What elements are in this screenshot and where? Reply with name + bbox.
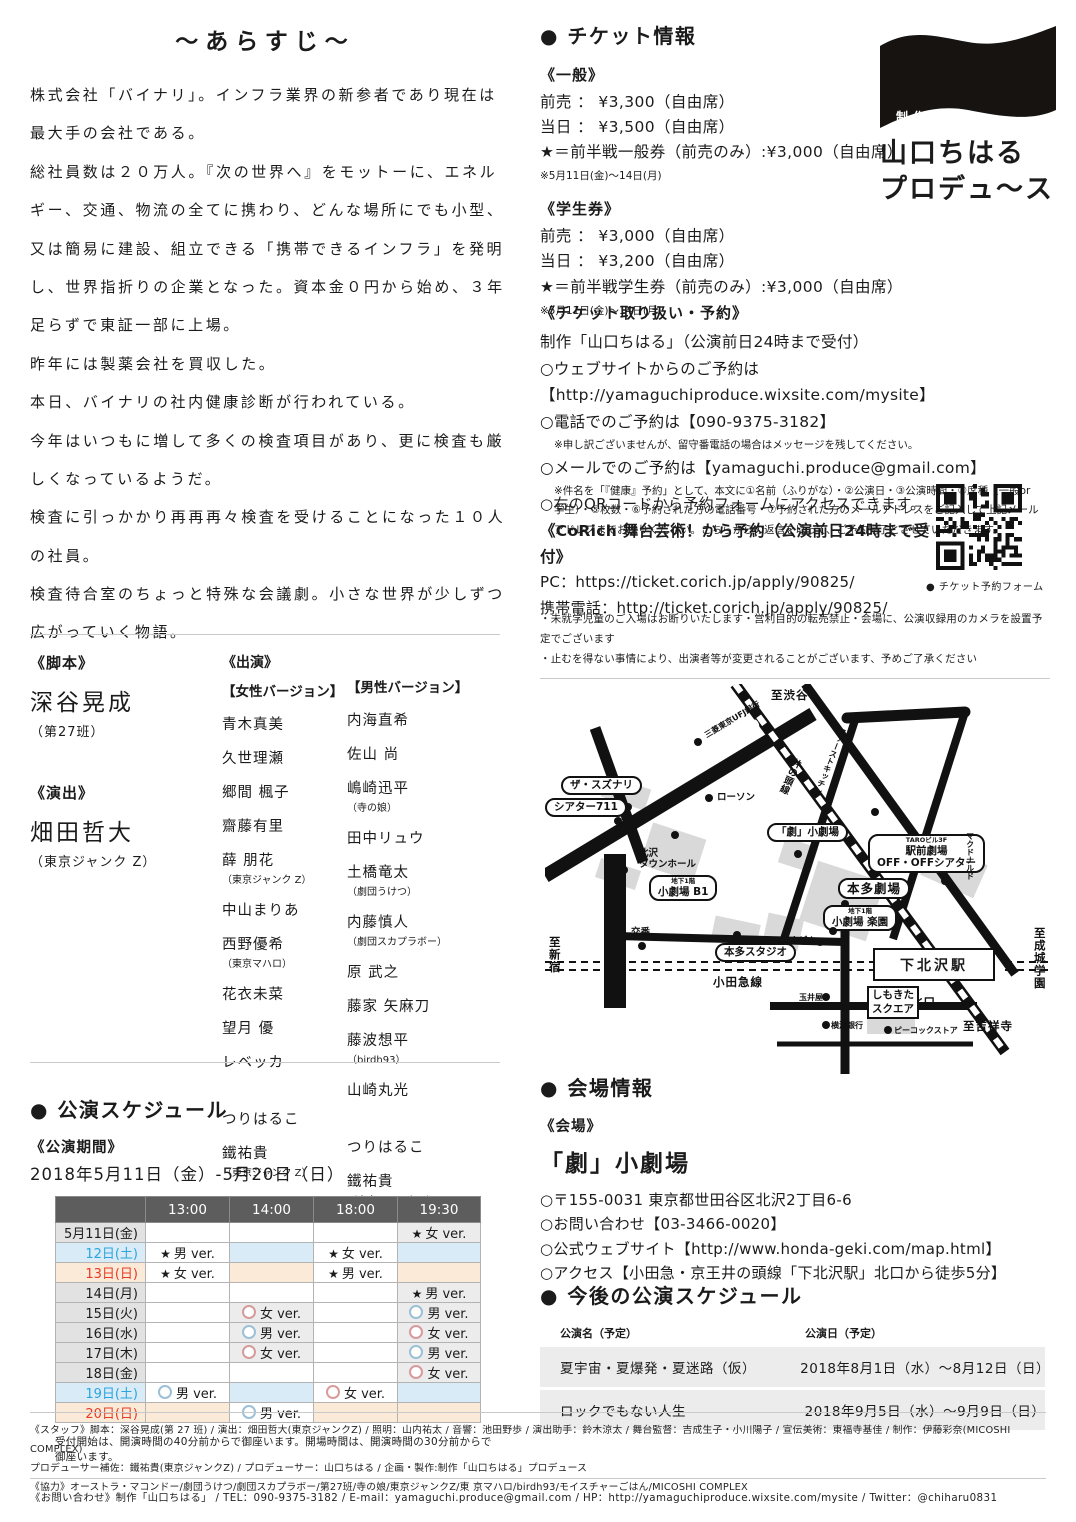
schedule-cell: ★男 ver. [146, 1243, 230, 1263]
schedule-cell: 女 ver. [398, 1363, 481, 1383]
schedule-cell [398, 1263, 481, 1283]
schedule-cell [146, 1363, 230, 1383]
map-label: 地下1階小劇場 B1 [649, 875, 717, 901]
schedule-cell [146, 1283, 230, 1303]
cast-member-name: 青木真美 [222, 713, 347, 734]
schedule-row: 13日(日)★女 ver.★男 ver. [56, 1263, 481, 1283]
cast-member-note: （劇団うけつ） [347, 883, 505, 898]
star-icon: ★ [412, 1287, 423, 1301]
direction-label: 《演出》 [30, 782, 220, 803]
cast-label-spacer [347, 652, 505, 668]
schedule-cell [314, 1363, 398, 1383]
cast-member: 望月 優 [222, 1017, 347, 1038]
cast-member-name: 薛 朋花 [222, 849, 347, 870]
cast-member: 田中リュウ [347, 827, 505, 848]
map-label: 至成城学園 [1032, 927, 1046, 990]
schedule-row: 12日(土)★男 ver.★女 ver. [56, 1243, 481, 1263]
qr-caption: ● チケット予約フォーム [926, 578, 1056, 593]
venue-line: ○公式ウェブサイト【http://www.honda-geki.com/map.… [540, 1237, 1045, 1261]
notice-line: ・止むを得ない事情により、出演者等が変更されることがございます、予めご了承くださ… [540, 650, 1045, 670]
map-label: 玉井屋 [799, 993, 823, 1003]
map-label-line: OFF・OFFシアター [877, 857, 976, 870]
cast-member: 原 武之 [347, 961, 505, 982]
cast-member-name: 西野優希 [222, 933, 347, 954]
map-dot [794, 850, 802, 858]
schedule-date: 18日(金) [56, 1363, 146, 1383]
notice-line: ・未就学児童のご入場はお断りいたします・営利目的の転売禁止・会場に、公演収録用の… [540, 610, 1045, 650]
cast-male-label: 【男性バージョン】 [347, 676, 505, 696]
schedule-cell [146, 1303, 230, 1323]
logo-name-line2: プロデュ～ス [880, 172, 1065, 208]
map-dot [694, 738, 702, 746]
synopsis-paragraph: 昨年には製薬会社を買収した。 [30, 345, 506, 383]
reservation-line: 【http://yamaguchiproduce.wixsite.com/mys… [540, 382, 1045, 409]
period-value: 2018年5月11日（金）-5月20日（日） [30, 1161, 500, 1185]
schedule-row: 15日(火)女 ver.男 ver. [56, 1303, 481, 1323]
cast-member: 薛 朋花（東京ジャンク Z） [222, 849, 347, 886]
circle-icon [409, 1305, 423, 1319]
venue-label: 《会場》 [540, 1115, 1045, 1136]
schedule-header-row: 13:0014:0018:0019:30 [56, 1197, 481, 1223]
synopsis-body: 株式会社「バイナリ」。インフラ業界の新参者であり現在は最大手の会社である。総社員… [30, 76, 506, 652]
cast-member-note: （劇団スカプラボー） [347, 933, 505, 948]
map-label: 至吉祥寺 [963, 1020, 1013, 1034]
cast-member-name: 原 武之 [347, 961, 505, 982]
schedule-cell: 男 ver. [398, 1303, 481, 1323]
circle-icon [242, 1325, 256, 1339]
schedule-heading: ● 公演スケジュール [30, 1094, 500, 1123]
access-map: 至渋谷茶沢通り三菱東京UFJ銀行ザ・スズナリシアター711ローソン北沢 タウンホ… [545, 684, 1050, 1074]
cast-member: 齋藤有里 [222, 815, 347, 836]
cast-member-name: 花衣未菜 [222, 983, 347, 1004]
cast-member-name: 嶋崎迅平 [347, 777, 505, 798]
cast-member-name: 望月 優 [222, 1017, 347, 1038]
map-dot [671, 831, 679, 839]
schedule-row: 17日(木)女 ver.男 ver. [56, 1343, 481, 1363]
schedule-row: 5月11日(金)★女 ver. [56, 1223, 481, 1243]
station-label: 下北沢駅 [873, 948, 995, 981]
direction-name: 畑田哲大 [30, 813, 220, 847]
map-dot [638, 942, 646, 950]
map-dot [822, 1021, 830, 1029]
cast-member: 久世理瀬 [222, 747, 347, 768]
schedule-cell: 男 ver. [146, 1383, 230, 1403]
cast-member-note: （寺の娘） [347, 799, 505, 814]
cast-member: 土橋竜太（劇団うけつ） [347, 861, 505, 898]
future-col1-header: 公演名（予定） [560, 1325, 805, 1341]
map-dot [620, 866, 628, 874]
schedule-cell: 男 ver. [230, 1323, 314, 1343]
reservation-line: ※申し訳ございませんが、留守番電話の場合はメッセージを残してください。 [540, 436, 1040, 455]
map-label-line: 小劇場 楽園 [832, 916, 888, 929]
synopsis-paragraph: 検査に引っかかり再再再々検査を受けることになった１０人の社員。 [30, 498, 506, 575]
circle-icon [409, 1365, 423, 1379]
map-label-line: しもきた [872, 989, 914, 1003]
schedule-cell [314, 1343, 398, 1363]
venue-line: ○〒155-0031 東京都世田谷区北沢2丁目6-6 [540, 1188, 1045, 1212]
map-dot [614, 817, 622, 825]
text-line: 前売 ： ¥3,000（自由席） [540, 224, 940, 249]
cast-member-name: 中山まりあ [222, 899, 347, 920]
schedule-date: 16日(水) [56, 1323, 146, 1343]
map-label: ピーコックストア [894, 1026, 958, 1036]
cast-female-label: 【女性バージョン】 [222, 680, 347, 700]
schedule-cell [146, 1323, 230, 1343]
script-name: 深谷晃成 [30, 683, 220, 717]
producer-logo: 制作 山口ちはる プロデュ～ス [880, 26, 1065, 207]
venue-line: ○お問い合わせ【03-3466-0020】 [540, 1212, 1045, 1236]
map-label-line: 地下1階 [832, 908, 888, 916]
divider [30, 1478, 1046, 1479]
staff-lines: 《スタッフ》脚本：深谷晃成(第 27 班) / 演出：畑田哲大(東京ジャンクZ)… [30, 1421, 1046, 1497]
schedule-date: 5月11日(金) [56, 1223, 146, 1243]
reservation-line: ○ウェブサイトからのご予約は [540, 356, 1045, 383]
reservation-line: ○電話でのご予約は【090-9375-3182】 [540, 409, 1045, 436]
map-label: ローソン [717, 792, 755, 803]
cast-member: 郷間 楓子 [222, 781, 347, 802]
future-heading: ● 今後の公演スケジュール [540, 1280, 1045, 1309]
star-icon: ★ [160, 1247, 171, 1261]
schedule-cell [230, 1283, 314, 1303]
cast-member-name: 藤家 矢麻刀 [347, 995, 505, 1016]
circle-icon [158, 1385, 172, 1399]
synopsis-paragraph: 株式会社「バイナリ」。インフラ業界の新参者であり現在は最大手の会社である。 [30, 76, 506, 153]
cast-member-name: 内海直希 [347, 709, 505, 730]
staff-credit-line: 《スタッフ》脚本：深谷晃成(第 27 班) / 演出：畑田哲大(東京ジャンクZ)… [30, 1421, 1046, 1459]
cast-label: 《出演》 [222, 652, 347, 672]
future-date: 2018年8月1日（水）～8月12日（日） [800, 1357, 1045, 1377]
circle-icon [409, 1345, 423, 1359]
synopsis-title: ～あらすじ～ [30, 22, 500, 56]
cast-member: 内海直希 [347, 709, 505, 730]
map-label: 横浜銀行 [831, 1021, 863, 1031]
logo-name-line1: 山口ちはる [880, 136, 1065, 172]
map-dot [733, 931, 741, 939]
star-icon: ★ [412, 1227, 423, 1241]
cast-member: 花衣未菜 [222, 983, 347, 1004]
schedule-date: 19日(土) [56, 1383, 146, 1403]
venue-lines: ○〒155-0031 東京都世田谷区北沢2丁目6-6○お問い合わせ【03-346… [540, 1188, 1045, 1285]
schedule-cell: ★女 ver. [398, 1223, 481, 1243]
map-label: マクドナルド [965, 832, 975, 880]
direction-note: （東京ジャンク Z） [30, 851, 220, 870]
schedule-section: ● 公演スケジュール 《公演期間》 2018年5月11日（金）-5月20日（日）… [30, 1094, 500, 1464]
schedule-cell: ★男 ver. [398, 1283, 481, 1303]
schedule-cell [230, 1383, 314, 1403]
schedule-row: 16日(水)男 ver.女 ver. [56, 1323, 481, 1343]
qr-line: ○右のQRコードから予約フォームにアクセスできます。 [540, 492, 930, 518]
map-label: 交番 [631, 927, 650, 938]
text-line: ★＝前半戦学生券（前売のみ）:¥3,000（自由席） [540, 275, 940, 300]
reservation-line: 制作「山口ちはる」（公演前日24時まで受付） [540, 329, 1045, 356]
divider [30, 1062, 500, 1063]
cast-member-name: 藤波想平 [347, 1029, 505, 1050]
map-label: シアター711 [545, 798, 627, 817]
cast-member-name: 齋藤有里 [222, 815, 347, 836]
schedule-cell: ★男 ver. [314, 1263, 398, 1283]
future-row: 夏宇宙・夏爆発・夏迷路（仮）2018年8月1日（水）～8月12日（日） [540, 1347, 1045, 1387]
cast-member: 藤波想平（birdh93） [347, 1029, 505, 1066]
cast-member-note: （birdh93） [347, 1051, 505, 1066]
map-label-line: TAROビル3F [877, 837, 976, 845]
qr-lines: ○右のQRコードから予約フォームにアクセスできます。《CoRich 舞台芸術！か… [540, 492, 930, 621]
flag-logo-icon: 制作 [880, 26, 1056, 132]
map-label: 至新宿 [547, 936, 561, 974]
future-title: ロックでもない人生 [560, 1400, 805, 1420]
text-line: 当日 ： ¥3,200（自由席） [540, 249, 940, 274]
map-label: しもきたスクエア [867, 986, 919, 1019]
cast-member: 内藤慎人（劇団スカプラボー） [347, 911, 505, 948]
future-section: ● 今後の公演スケジュール 公演名（予定） 公演日（予定） 夏宇宙・夏爆発・夏迷… [540, 1280, 1045, 1433]
synopsis-paragraph: 今年はいつもに増して多くの検査項目があり、更に検査も厳しくなっているようだ。 [30, 422, 506, 499]
cast-member-name: 土橋竜太 [347, 861, 505, 882]
map-label: 至渋谷 [771, 689, 809, 703]
venue-section: ● 会場情報 《会場》 「劇」小劇場 ○〒155-0031 東京都世田谷区北沢2… [540, 1072, 1045, 1285]
script-note: （第27班） [30, 721, 220, 740]
schedule-date: 15日(火) [56, 1303, 146, 1323]
map-dot [871, 808, 879, 816]
map-label-line: 地下1階 [658, 878, 708, 886]
schedule-time: 14:00 [230, 1197, 314, 1223]
schedule-date: 14日(月) [56, 1283, 146, 1303]
divider [540, 678, 1050, 679]
future-rows: 夏宇宙・夏爆発・夏迷路（仮）2018年8月1日（水）～8月12日（日）ロックでも… [540, 1347, 1045, 1430]
contact-line: 《お問い合わせ》制作「山口ちはる」 / TEL：090-9375-3182 / … [30, 1489, 1046, 1504]
schedule-time: 13:00 [146, 1197, 230, 1223]
schedule-cell [314, 1283, 398, 1303]
map-label-line: 駅前劇場 [877, 845, 976, 858]
schedule-date: 17日(木) [56, 1343, 146, 1363]
schedule-cell [146, 1343, 230, 1363]
schedule-date: 13日(日) [56, 1263, 146, 1283]
future-col2-header: 公演日（予定） [805, 1325, 882, 1341]
schedule-cell [230, 1363, 314, 1383]
venue-heading: ● 会場情報 [540, 1072, 1045, 1101]
schedule-cell [314, 1323, 398, 1343]
star-icon: ★ [160, 1267, 171, 1281]
schedule-row: 14日(月)★男 ver. [56, 1283, 481, 1303]
schedule-row: 19日(土)男 ver.女 ver. [56, 1383, 481, 1403]
schedule-cell [398, 1243, 481, 1263]
reservation-label: 《チケット取り扱い・予約》 [540, 302, 1045, 323]
cast-member-name: 内藤慎人 [347, 911, 505, 932]
schedule-cell: 女 ver. [230, 1343, 314, 1363]
schedule-cell: 女 ver. [398, 1323, 481, 1343]
cast-member: 青木真美 [222, 713, 347, 734]
cast-member-note: （東京マハロ） [222, 955, 347, 970]
reservation-line: ○メールでのご予約は【yamaguchi.produce@gmail.com】 [540, 455, 1045, 482]
qr-code [936, 484, 1022, 570]
cast-member: 嶋崎迅平（寺の娘） [347, 777, 505, 814]
qr-text-block: ○右のQRコードから予約フォームにアクセスできます。《CoRich 舞台芸術！か… [540, 492, 930, 621]
ticket-student-lines: 前売 ： ¥3,000（自由席）当日 ： ¥3,200（自由席）★＝前半戦学生券… [540, 224, 940, 299]
synopsis-paragraph: 検査待合室のちょっと特殊な会議劇。小さな世界が少しずつ広がっていく物語。 [30, 575, 506, 652]
map-label-line: 小劇場 B1 [658, 886, 708, 899]
schedule-cell [146, 1223, 230, 1243]
schedule-date: 12日(土) [56, 1243, 146, 1263]
schedule-cell [230, 1243, 314, 1263]
staff-credit-line: プロデューサー補佐：鐵祐貴(東京ジャンクZ) / プロデューサー：山口ちはる /… [30, 1459, 1046, 1478]
map-label-line: スクエア [872, 1003, 914, 1017]
map-label: 「劇」小劇場 [767, 823, 848, 842]
synopsis-paragraph: 本日、バイナリの社内健康診断が行われている。 [30, 383, 506, 421]
map-label: 北沢 タウンホール [639, 848, 696, 871]
qr-line: PC：https://ticket.corich.jp/apply/90825/ [540, 570, 930, 596]
schedule-table: 13:0014:0018:0019:305月11日(金)★女 ver.12日(土… [55, 1196, 481, 1423]
cast-member-name: 郷間 楓子 [222, 781, 347, 802]
qr-code-svg [936, 484, 1022, 570]
schedule-cell: ★女 ver. [146, 1263, 230, 1283]
cast-member-name: 田中リュウ [347, 827, 505, 848]
schedule-cell [314, 1303, 398, 1323]
notices: ・未就学児童のご入場はお断りいたします・営利目的の転売禁止・会場に、公演収録用の… [540, 610, 1045, 670]
period-label: 《公演期間》 [30, 1136, 500, 1157]
star-icon: ★ [328, 1267, 339, 1281]
schedule-cell [230, 1223, 314, 1243]
map-dot [816, 938, 824, 946]
schedule-cell [230, 1263, 314, 1283]
future-date: 2018年9月5日（水）～9月9日（日） [805, 1400, 1045, 1420]
schedule-cell [314, 1223, 398, 1243]
credits-block: 《脚本》 深谷晃成 （第27班） 《演出》 畑田哲大 （東京ジャンク Z） [30, 652, 220, 870]
star-icon: ★ [328, 1247, 339, 1261]
map-label: 本多劇場 [838, 878, 910, 899]
map-label: オオゼキ [779, 936, 817, 947]
schedule-cell: 男 ver. [398, 1343, 481, 1363]
cast-member: 中山まりあ [222, 899, 347, 920]
circle-icon [409, 1325, 423, 1339]
map-label: ザ・スズナリ [561, 776, 642, 795]
divider [30, 1412, 1046, 1413]
cast-member: 西野優希（東京マハロ） [222, 933, 347, 970]
circle-icon [326, 1385, 340, 1399]
map-dot [941, 877, 949, 885]
cast-member-name: 久世理瀬 [222, 747, 347, 768]
cast-member: 佐山 尚 [347, 743, 505, 764]
schedule-cell: ★女 ver. [314, 1243, 398, 1263]
schedule-time: 19:30 [398, 1197, 481, 1223]
future-title: 夏宇宙・夏爆発・夏迷路（仮） [560, 1357, 800, 1377]
schedule-time: 18:00 [314, 1197, 398, 1223]
schedule-row: 18日(金)女 ver. [56, 1363, 481, 1383]
map-dot [822, 993, 830, 1001]
schedule-cell [398, 1383, 481, 1403]
script-label: 《脚本》 [30, 652, 220, 673]
qr-line: 《CoRich 舞台芸術！から予約（公演前日24時まで受付》 [540, 518, 930, 571]
map-label: 小田急線 [713, 976, 763, 990]
logo-seisaku: 制作 [896, 109, 930, 124]
venue-name: 「劇」小劇場 [540, 1144, 1045, 1178]
schedule-cell: 女 ver. [314, 1383, 398, 1403]
map-dot [884, 1026, 892, 1034]
map-dot [705, 794, 713, 802]
synopsis-paragraph: 総社員数は２０万人。『次の世界へ』をモットーに、エネルギー、交通、物流の全てに携… [30, 153, 506, 345]
circle-icon [242, 1305, 256, 1319]
map-dot [829, 927, 837, 935]
cast-member: 藤家 矢麻刀 [347, 995, 505, 1016]
cast-member-note: （東京ジャンク Z） [222, 871, 347, 886]
cast-member-name: 佐山 尚 [347, 743, 505, 764]
circle-icon [242, 1345, 256, 1359]
flyer-page: ～あらすじ～ 株式会社「バイナリ」。インフラ業界の新参者であり現在は最大手の会社… [0, 0, 1076, 1522]
schedule-cell: 女 ver. [230, 1303, 314, 1323]
divider [30, 634, 500, 635]
